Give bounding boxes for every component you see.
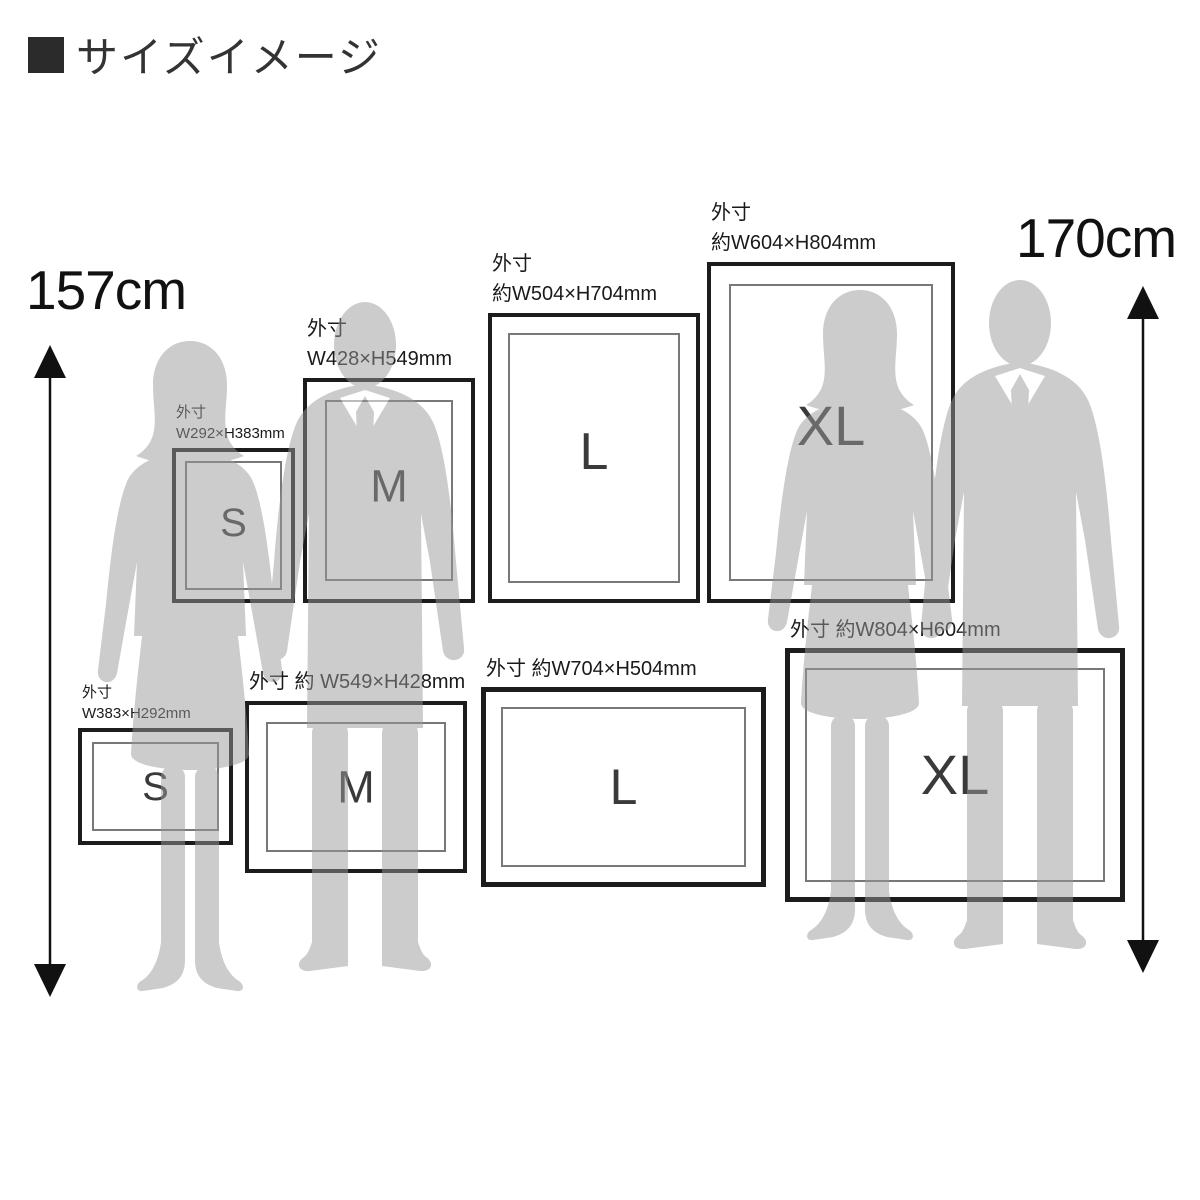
frame-xl-portrait-letter: XL: [711, 398, 951, 454]
frame-l-landscape-size-label: 外寸 約W704×H504mm: [486, 654, 697, 684]
frame-s-landscape-letter: S: [82, 767, 229, 807]
frame-xl-landscape-size-label: 外寸 約W804×H604mm: [790, 615, 1001, 645]
page-title: サイズイメージ: [28, 24, 382, 85]
size-comparison-diagram: サイズイメージ 157cm 170cm 外寸 W292×H383mm S 外寸 …: [0, 0, 1200, 1200]
left-height-arrow-icon: [34, 345, 66, 997]
label-line1: 外寸: [176, 402, 285, 423]
frame-l-landscape-letter: L: [486, 762, 761, 812]
frame-xl-landscape-letter: XL: [790, 747, 1120, 803]
frame-l-landscape: 外寸 約W704×H504mm L: [481, 687, 766, 887]
label-line1: 外寸: [492, 249, 657, 279]
frame-m-landscape-letter: M: [249, 765, 463, 810]
title-bullet-square-icon: [28, 37, 64, 73]
frame-s-portrait: 外寸 W292×H383mm S: [172, 448, 295, 603]
frame-m-landscape: 外寸 約 W549×H428mm M: [245, 701, 467, 873]
label-line1: 外寸: [307, 314, 452, 344]
left-height-label: 157cm: [26, 258, 186, 322]
label-line1: 外寸: [711, 198, 876, 228]
frame-m-landscape-size-label: 外寸 約 W549×H428mm: [249, 667, 465, 697]
frame-l-portrait-size-label: 外寸 約W504×H704mm: [492, 249, 657, 309]
label-line1: 外寸: [82, 682, 191, 703]
page-title-text: サイズイメージ: [76, 24, 382, 85]
label-line2: W428×H549mm: [307, 344, 452, 374]
frame-s-landscape: 外寸 W383×H292mm S: [78, 728, 233, 845]
frame-m-portrait-size-label: 外寸 W428×H549mm: [307, 314, 452, 374]
label-line1: 外寸 約W704×H504mm: [486, 654, 697, 684]
frame-s-portrait-letter: S: [176, 503, 291, 543]
label-line2: 約W604×H804mm: [711, 228, 876, 258]
frame-s-landscape-size-label: 外寸 W383×H292mm: [82, 682, 191, 724]
label-line1: 外寸 約 W549×H428mm: [249, 667, 465, 697]
frame-m-portrait-letter: M: [307, 464, 471, 509]
frame-xl-portrait-size-label: 外寸 約W604×H804mm: [711, 198, 876, 258]
frame-s-portrait-size-label: 外寸 W292×H383mm: [176, 402, 285, 444]
frame-m-portrait: 外寸 W428×H549mm M: [303, 378, 475, 603]
right-height-arrow-icon: [1127, 286, 1159, 973]
frame-xl-portrait: 外寸 約W604×H804mm XL: [707, 262, 955, 603]
frame-l-portrait-letter: L: [492, 426, 696, 478]
frame-l-portrait: 外寸 約W504×H704mm L: [488, 313, 700, 603]
label-line2: W383×H292mm: [82, 703, 191, 724]
label-line1: 外寸 約W804×H604mm: [790, 615, 1001, 645]
frame-xl-landscape: 外寸 約W804×H604mm XL: [785, 648, 1125, 902]
label-line2: 約W504×H704mm: [492, 279, 657, 309]
label-line2: W292×H383mm: [176, 423, 285, 444]
right-height-label: 170cm: [1016, 206, 1176, 270]
